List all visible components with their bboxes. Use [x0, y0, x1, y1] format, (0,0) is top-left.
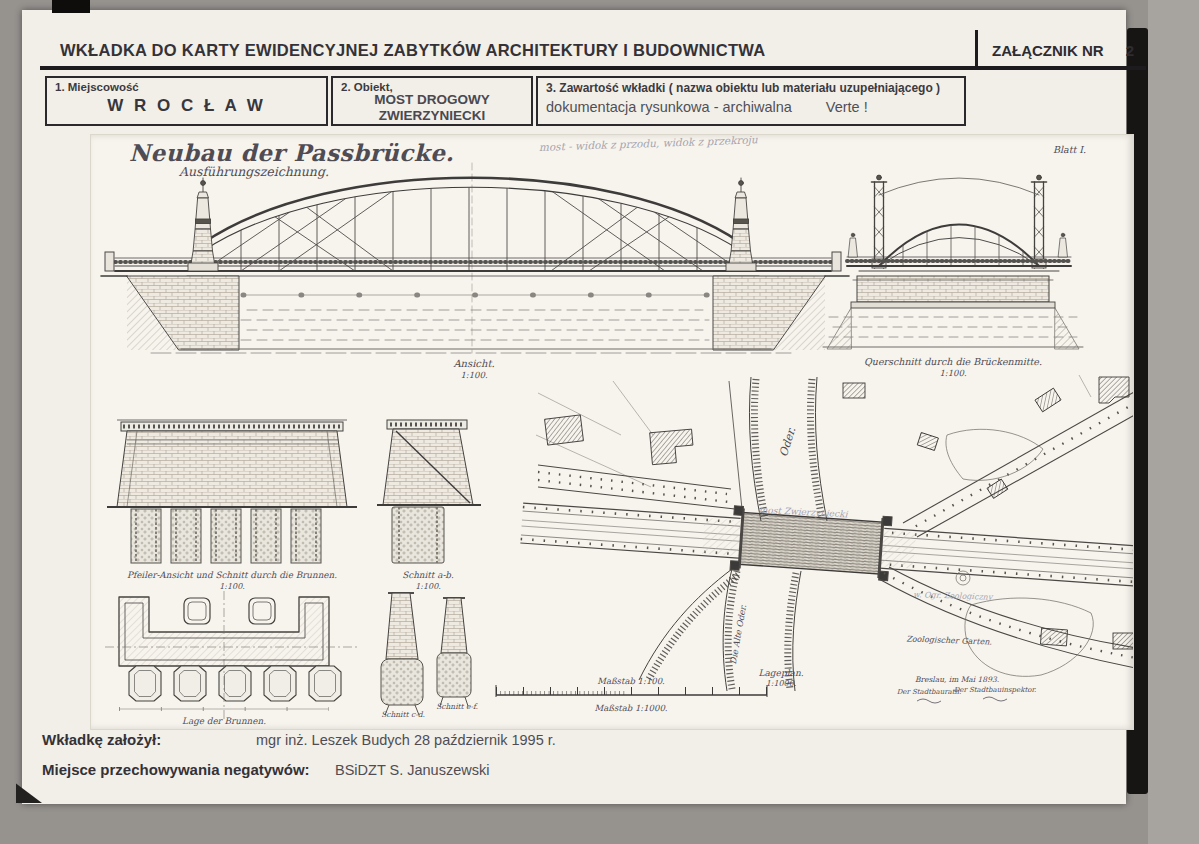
verte-note: Verte ! — [826, 99, 868, 115]
section-ab-drawing: Schnitt a-b. 1:100. — [377, 420, 481, 591]
pier-view-drawing: Pfeiler-Ansicht und Schnitt durch die Br… — [107, 420, 357, 591]
wells-plan-caption: Lage der Brunnen. — [182, 716, 266, 726]
site-plan-drawing: Oder. Die Alte Oder. most Zwierzyniecki … — [520, 375, 1133, 703]
field-contents-label: 3. Zawartość wkładki ( nazwa obiektu lub… — [538, 78, 964, 95]
field-place-label: 1. Miejscowość — [47, 78, 326, 93]
drawing-title-script: Neubau der Passbrücke. — [129, 139, 454, 166]
field-object-label: 2. Obiekt, — [333, 78, 531, 93]
footer-negatives-label: Miejsce przechowywania negatywów: — [42, 761, 310, 778]
site-plan-caption: Lageplan. — [758, 668, 803, 678]
card-title: WKŁADKA DO KARTY EWIDENCYJNEJ ZABYTKÓW A… — [60, 41, 765, 60]
scan-corner-artifact — [52, 0, 90, 13]
river-upper-label: Oder. — [777, 426, 798, 459]
pier-caption: Pfeiler-Ansicht und Schnitt durch die Br… — [127, 570, 337, 580]
elevation-caption: Ansicht. — [452, 358, 494, 369]
signature-block: Breslau, im Mai 1893. Der Stadtbaurath. … — [897, 675, 1037, 703]
caisson-octagons — [129, 666, 341, 701]
bridge-elevation-drawing: Ansicht. 1:100. — [101, 153, 849, 380]
field-object: 2. Obiekt, MOST DROGOWY ZWIERZYNIECKI — [331, 76, 533, 126]
scanned-archive-card: WKŁADKA DO KARTY EWIDENCYJNEJ ZABYTKÓW A… — [0, 0, 1199, 844]
right-pylon — [1032, 175, 1047, 268]
water-lines — [241, 310, 709, 340]
footer-created-label: Wkładkę założył: — [42, 731, 214, 748]
field-contents: 3. Zawartość wkładki ( nazwa obiektu lub… — [536, 76, 966, 126]
right-obelisk-tower — [726, 178, 756, 271]
field-place: 1. Miejscowość W R O C Ł A W — [45, 76, 328, 126]
header-rule — [40, 66, 1146, 70]
attachment-cell: ZAŁĄCZNIK NR 2 — [992, 42, 1134, 59]
cross-section-caption: Querschnitt durch die Brückenmitte. — [864, 356, 1042, 367]
scale-bar-top-label: Maßstab 1:100. — [597, 676, 665, 686]
wall-sections-drawing: Schnitt c-d. Schnitt e-f. — [381, 593, 478, 719]
footer-negatives-row: Miejsce przechowywania negatywów: BSiDZT… — [42, 761, 489, 778]
header-divider — [975, 30, 978, 68]
section-ab-scale: 1:100. — [415, 582, 441, 591]
drawing-subtitle-script: Ausführungszeichnung. — [178, 164, 329, 179]
garden-pencil-label: w. Ogr. Zoologiczny — [913, 590, 994, 602]
field-object-value: MOST DROGOWY ZWIERZYNIECKI — [333, 92, 531, 124]
left-obelisk-tower — [188, 178, 218, 271]
pencil-note: most - widok z przodu, widok z przekroju — [539, 135, 759, 154]
attachment-number: 2 — [1126, 42, 1134, 59]
footer-negatives-value: BSiDZT S. Januszewski — [335, 762, 489, 778]
caisson-wells — [131, 509, 321, 563]
scanner-margin — [1148, 0, 1199, 844]
left-pylon — [872, 175, 887, 268]
signature-squiggle — [983, 697, 1007, 701]
scale-bars: Maßstab 1:100. Maßstab 1:1000. — [496, 676, 767, 713]
cross-section-scale: 1:100. — [939, 368, 966, 378]
footer-created-value: mgr inż. Leszek Budych 28 październik 19… — [256, 732, 556, 748]
section-ef-caption: Schnitt e-f. — [436, 702, 478, 711]
signature-right: Der Stadtbauinspektor. — [954, 686, 1037, 694]
bridge-drawing-svg: Neubau der Passbrücke. Ausführungszeichn… — [91, 135, 1133, 729]
section-ab-caption: Schnitt a-b. — [402, 570, 454, 580]
footer-created-row: Wkładkę założył: mgr inż. Leszek Budych … — [42, 731, 556, 748]
signature-left: Der Stadtbaurath. — [897, 688, 962, 696]
wells-plan-drawing: Lage der Brunnen. — [105, 591, 359, 726]
signature-place-date: Breslau, im Mai 1893. — [915, 675, 999, 684]
abutments — [101, 276, 849, 350]
attachment-label: ZAŁĄCZNIK NR — [992, 42, 1104, 59]
bridge-footprint — [739, 512, 882, 574]
section-cd-caption: Schnitt c-d. — [381, 710, 425, 719]
sheet-number: Blatt I. — [1053, 144, 1086, 155]
archival-drawing-photo: Neubau der Passbrücke. Ausführungszeichn… — [90, 134, 1134, 730]
field-contents-value: dokumentacja rysunkowa - archiwalnaVerte… — [538, 95, 964, 115]
field-place-value: W R O C Ł A W — [47, 96, 326, 116]
site-plan-scale: 1:1000. — [766, 679, 797, 688]
cross-section-drawing: Querschnitt durch die Brückenmitte. 1:10… — [823, 175, 1083, 378]
elevation-scale: 1:100. — [460, 370, 487, 380]
signature-squiggle — [917, 699, 941, 703]
garden-label: Zoologischer Garten. — [906, 635, 992, 647]
pier-scale: 1:100. — [219, 582, 245, 591]
scale-bar-bottom-label: Maßstab 1:1000. — [594, 703, 667, 713]
